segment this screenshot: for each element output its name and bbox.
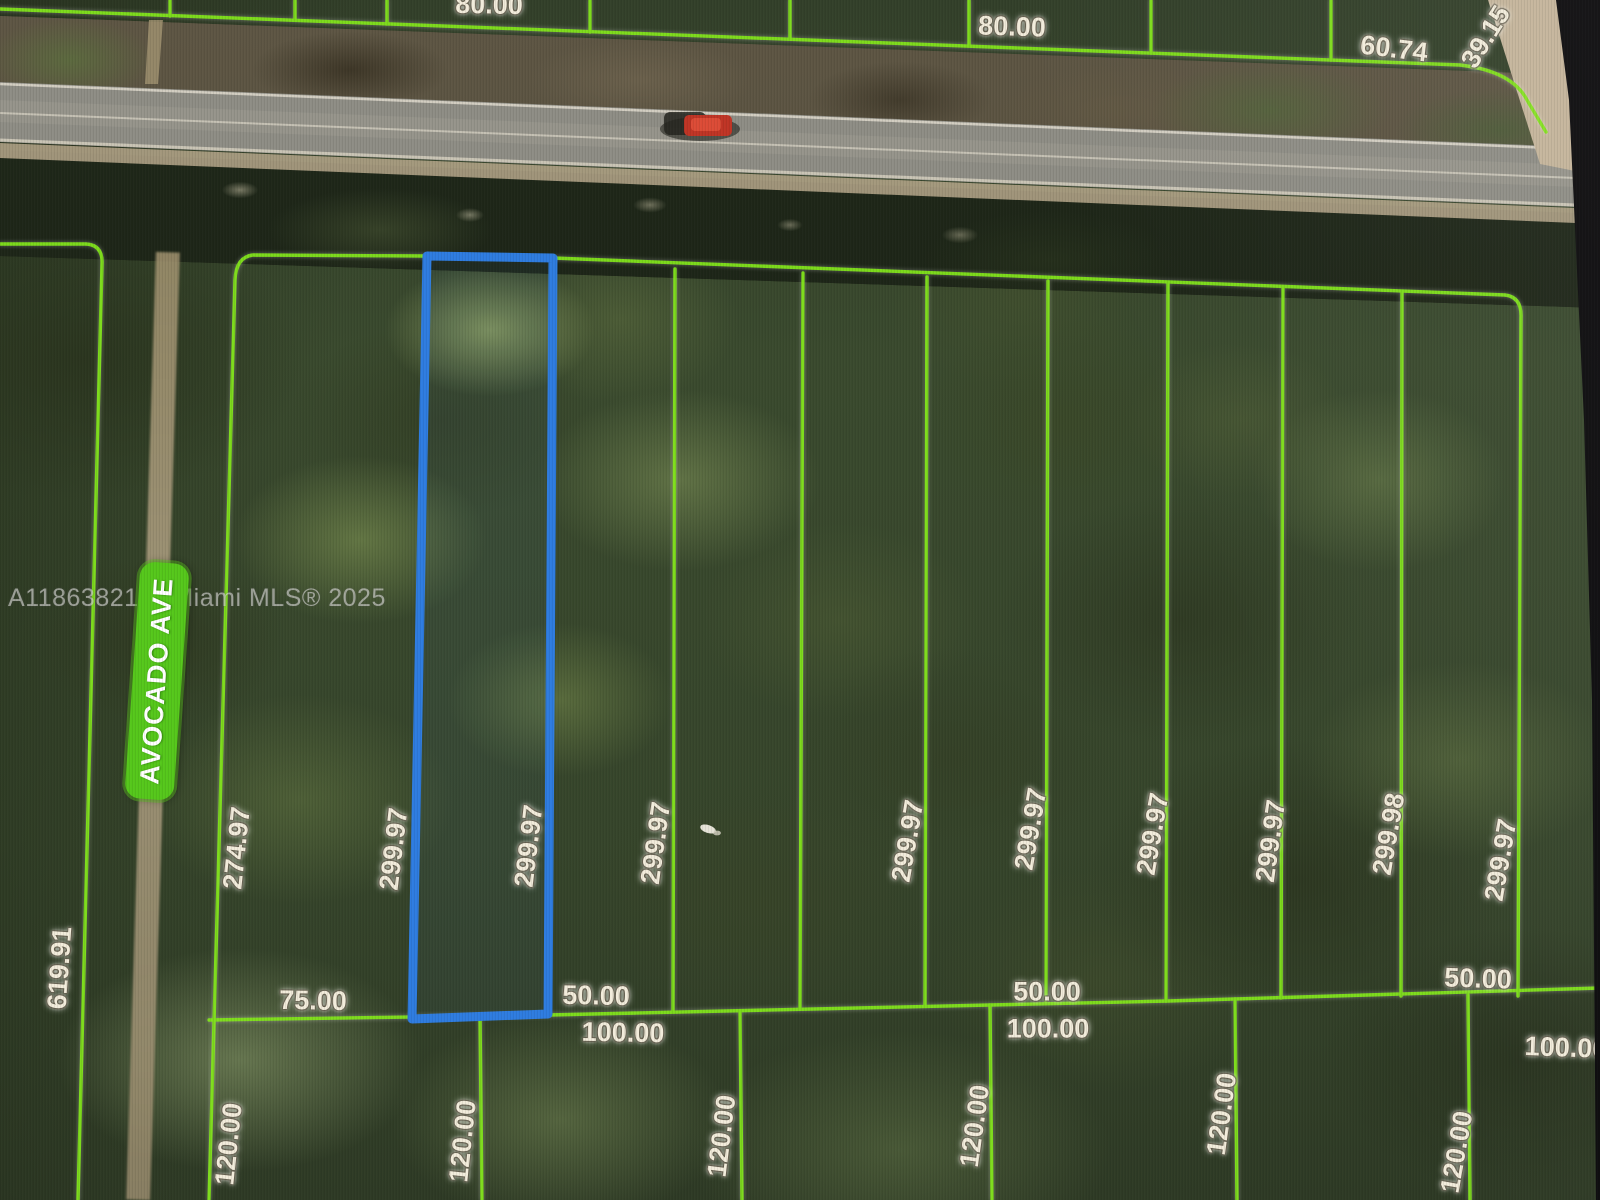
dimension-label: 80.00 xyxy=(978,12,1046,41)
dimension-label: 80.00 xyxy=(455,0,523,19)
paved-road xyxy=(0,82,1600,224)
mid-band-top-line xyxy=(553,258,1521,996)
dimension-label: 50.00 xyxy=(1444,964,1512,993)
dimension-label: 619.91 xyxy=(44,926,77,1010)
red-car xyxy=(660,112,740,141)
dimension-label: 100.00 xyxy=(581,1019,664,1047)
bird-speck xyxy=(699,823,721,836)
dimension-label: 75.00 xyxy=(279,987,347,1015)
dirt-trail xyxy=(145,20,163,84)
dimension-label: 100.00 xyxy=(1007,1016,1090,1043)
dimension-label: 50.00 xyxy=(1013,979,1081,1006)
street-east-line xyxy=(209,255,427,1200)
dimension-label: 100.00 xyxy=(1524,1033,1600,1063)
aerial-parcel-map: A11863821 © Miami MLS® 2025 AVOCADO AVE … xyxy=(0,0,1600,1200)
selected-parcel-outline xyxy=(412,256,553,1019)
street-west-line xyxy=(0,244,102,1200)
dimension-label: 50.00 xyxy=(562,982,630,1010)
mls-watermark: A11863821 © Miami MLS® 2025 xyxy=(8,584,386,613)
